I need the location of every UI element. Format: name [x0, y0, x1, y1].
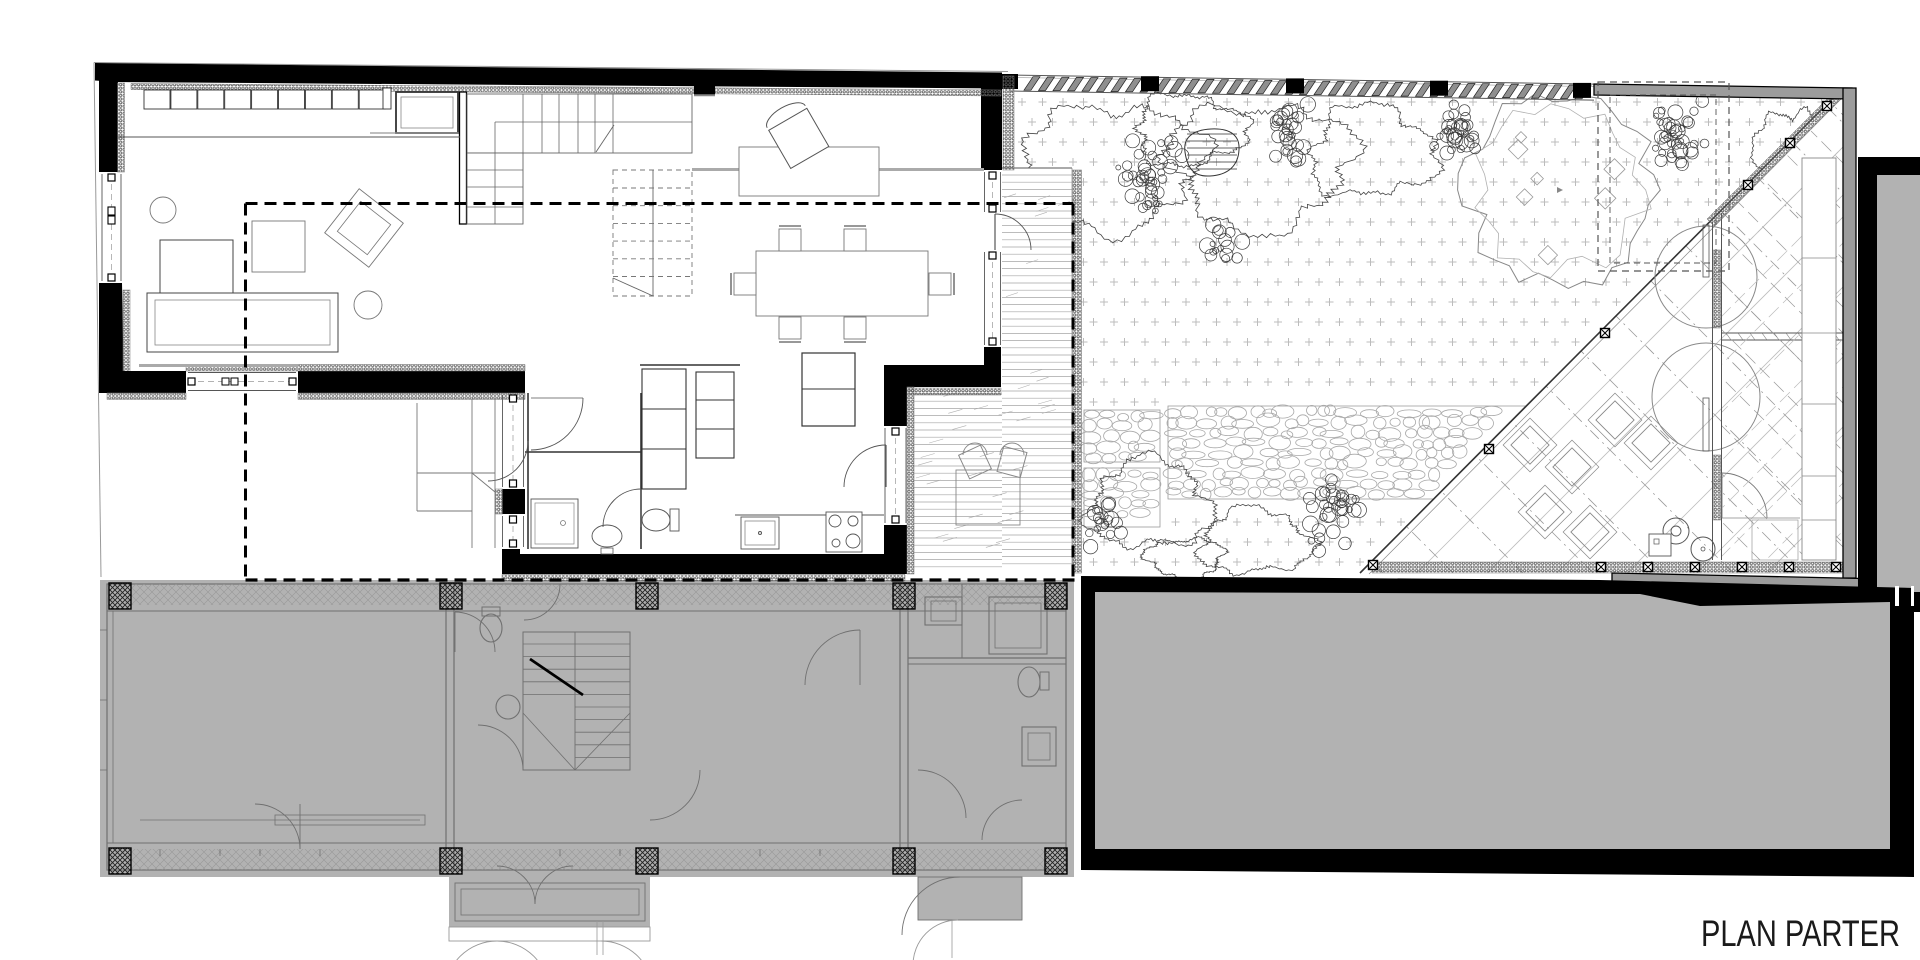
svg-text:PLAN PARTER: PLAN PARTER	[1701, 912, 1900, 954]
